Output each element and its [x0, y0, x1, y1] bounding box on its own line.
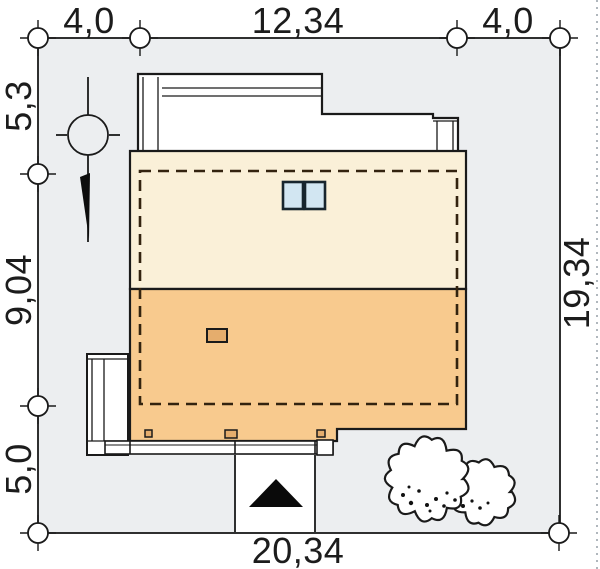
- dim-top-right: 4,0: [482, 0, 534, 41]
- garage-annex: [87, 354, 128, 455]
- roof-lower-slope: [130, 289, 466, 441]
- dim-left-upper: 5,3: [0, 80, 39, 132]
- skylight-window-left: [283, 182, 303, 209]
- dim-top-left: 4,0: [63, 0, 115, 41]
- dim-top-middle: 12,34: [252, 0, 345, 41]
- dim-left-lower: 5,0: [0, 443, 39, 495]
- skylight-window-right: [305, 182, 325, 209]
- gutter-band: [105, 440, 333, 455]
- chimney: [207, 329, 227, 342]
- dim-bottom: 20,34: [252, 530, 345, 569]
- dim-left-middle: 9,04: [0, 254, 39, 326]
- site-plan-drawing: 4,0 12,34 4,0 5,3 9,04 5,0 19,34 20,34: [0, 0, 600, 569]
- site-plan-svg: 4,0 12,34 4,0 5,3 9,04 5,0 19,34 20,34: [0, 0, 600, 569]
- driveway: [235, 455, 315, 532]
- dim-right: 19,34: [556, 237, 597, 330]
